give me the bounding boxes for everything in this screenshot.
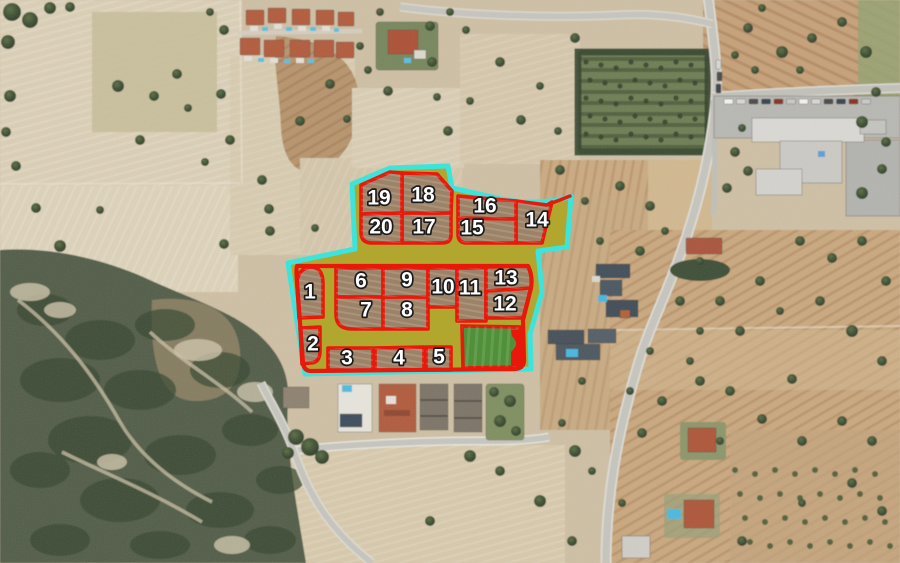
plot-label-14: 14 [525,209,549,232]
plot-label-11: 11 [459,277,482,300]
plot-label-1: 1 [304,281,316,304]
plot-label-5: 5 [433,346,445,369]
plot-label-9: 9 [401,269,413,292]
plot-label-8: 8 [401,299,413,322]
plot-label-10: 10 [431,276,454,299]
plot-label-6: 6 [355,270,367,293]
plot-label-19: 19 [367,187,390,210]
plot-label-4: 4 [393,347,405,370]
plot-label-17: 17 [412,216,435,239]
plot-label-18: 18 [411,184,435,207]
map-canvas: 1234567891011121314151617181920 [0,0,900,563]
plot-label-20: 20 [369,216,392,239]
plot-label-16: 16 [473,195,496,218]
plot-label-7: 7 [360,299,372,322]
plot-label-2: 2 [307,333,319,356]
satellite-map: 1234567891011121314151617181920 [0,0,900,563]
plot-label-3: 3 [341,347,353,370]
plot-label-15: 15 [460,217,484,240]
plot-label-12: 12 [493,293,516,316]
plot-label-13: 13 [494,267,517,290]
